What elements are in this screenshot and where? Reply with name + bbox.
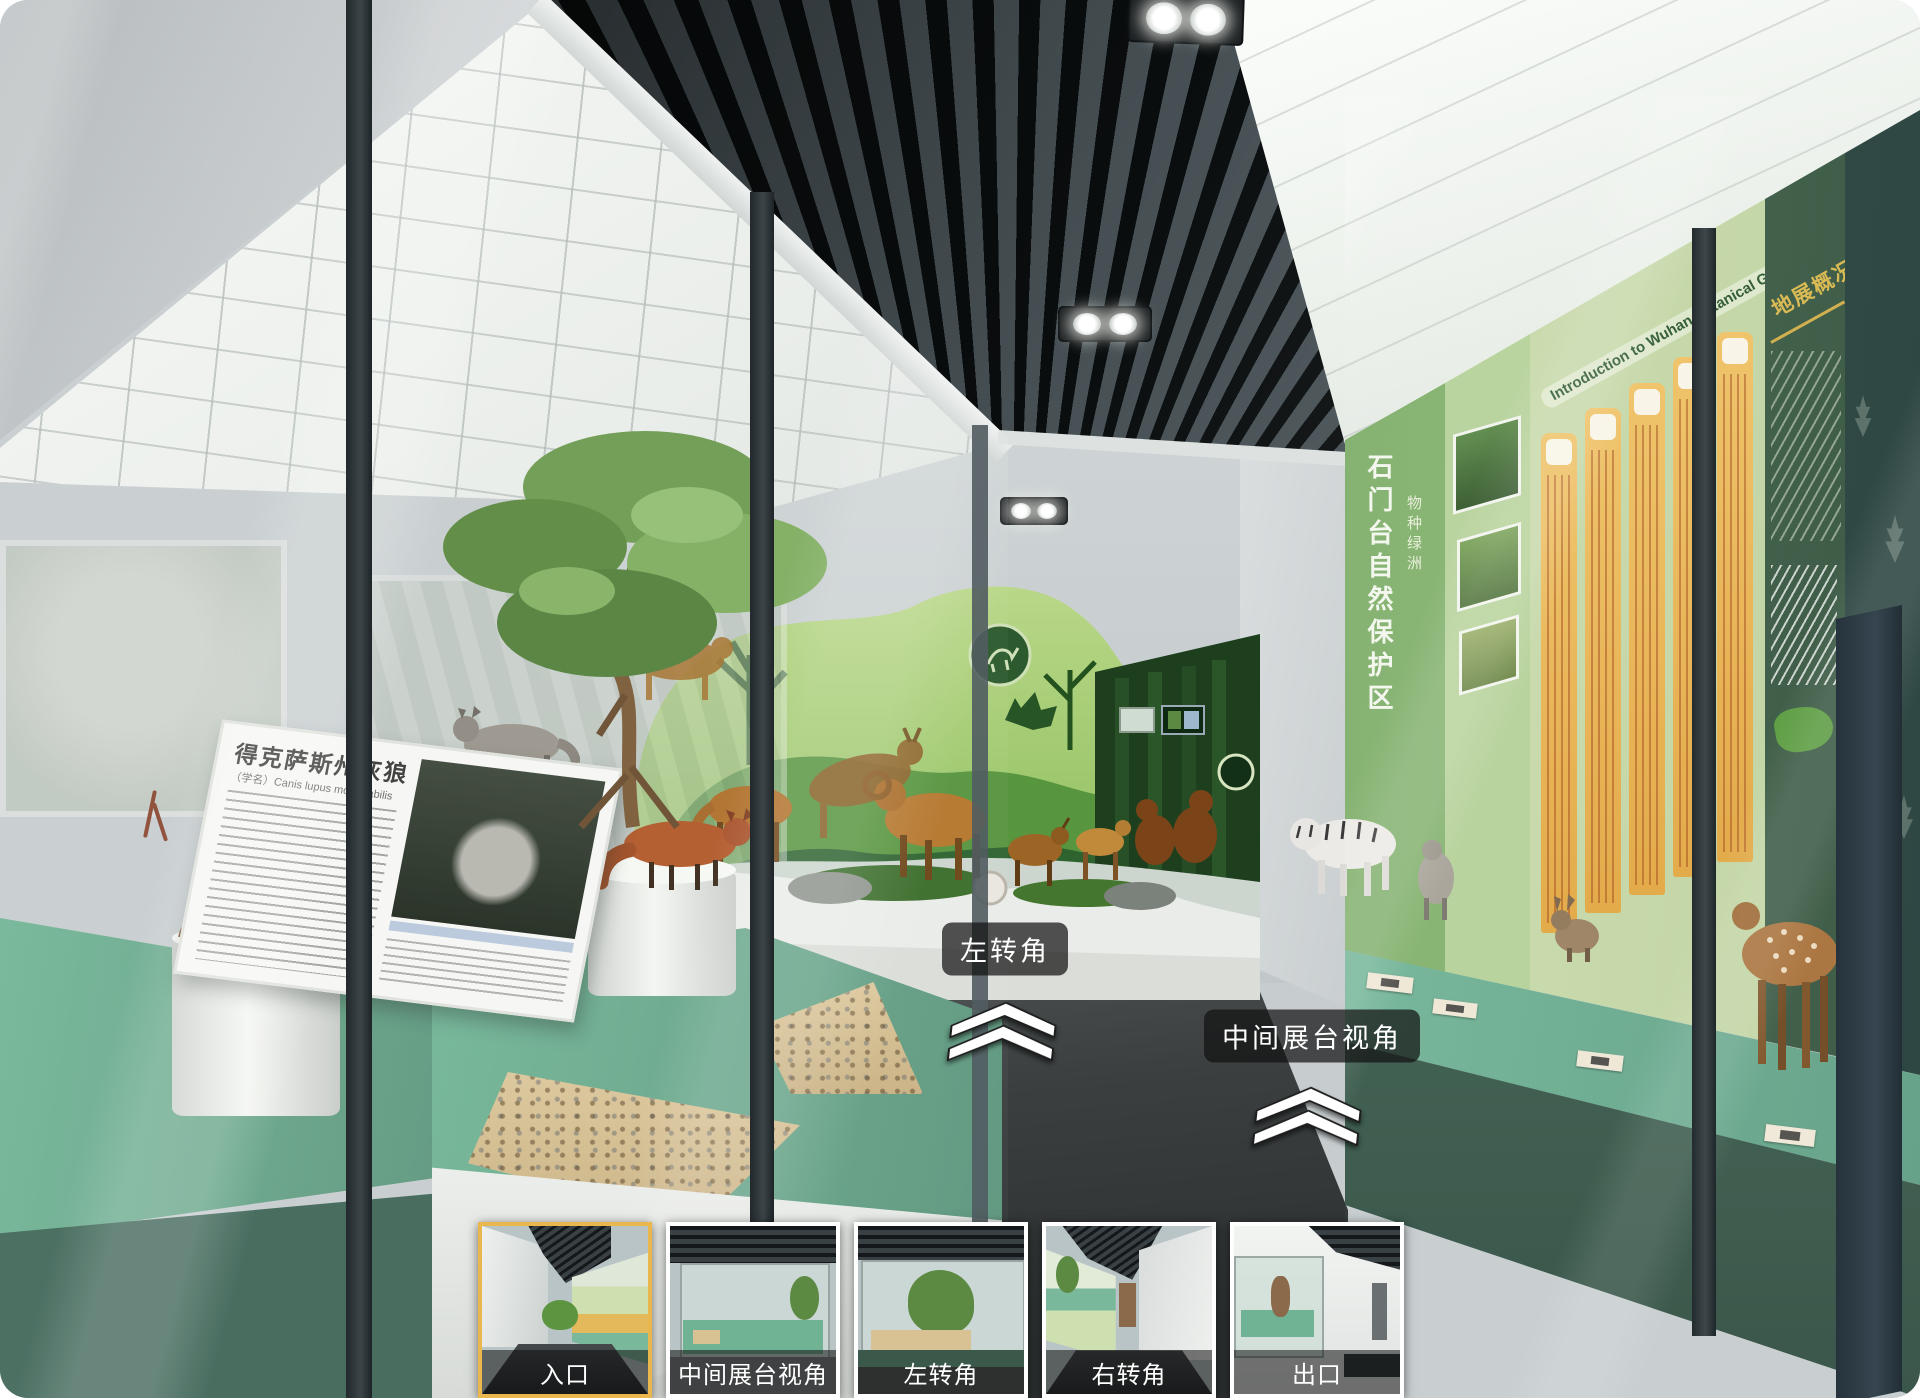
white-tiger-specimen — [1288, 792, 1406, 897]
region-map-silhouette — [1772, 702, 1837, 755]
habitat-photo — [1457, 522, 1521, 612]
reserve-subtitle-vertical: 物种绿洲 — [1403, 495, 1424, 575]
thumbnail-center-stage-view[interactable]: 中间展台视角 — [666, 1222, 840, 1398]
case-end-partition — [1836, 605, 1902, 1398]
thumbnail-right-corner[interactable]: 右转角 — [1042, 1222, 1216, 1398]
sika-deer-specimen — [1722, 882, 1852, 1082]
ficus-tree — [395, 395, 865, 835]
spotlight-fixture — [1127, 0, 1245, 46]
reserve-title-vertical: 石门台自然保护区 — [1361, 453, 1398, 717]
spotlight-fixture — [1058, 306, 1152, 342]
double-chevron-up-icon — [1239, 1081, 1378, 1147]
wolf-cub-specimen — [1408, 836, 1463, 921]
glass-mullion — [750, 192, 774, 1398]
rock — [1104, 882, 1176, 910]
hotspot-label-left-corner[interactable]: 左转角 — [942, 923, 1068, 976]
thumbnail-label: 左转角 — [858, 1350, 1024, 1394]
info-card — [1541, 433, 1577, 933]
habitat-photo — [1453, 415, 1521, 514]
thumbnail-entrance[interactable]: 入口 — [478, 1222, 652, 1398]
thumbnail-label: 右转角 — [1046, 1350, 1212, 1394]
overview-chinese-text — [1771, 351, 1841, 541]
overview-english-text — [1771, 565, 1837, 685]
hotspot-arrow-center-stage[interactable] — [1238, 1081, 1377, 1151]
thumbnail-left-corner[interactable]: 左转角 — [854, 1222, 1028, 1398]
thumbnail-label: 中间展台视角 — [670, 1350, 836, 1394]
thumbnail-label: 入口 — [482, 1350, 648, 1394]
thumbnail-exit[interactable]: 出口 — [1230, 1222, 1404, 1398]
info-card — [1585, 408, 1621, 913]
hotspot-label-center-stage[interactable]: 中间展台视角 — [1204, 1010, 1420, 1063]
glass-mullion — [1692, 228, 1716, 1336]
spotlight-fixture — [1000, 497, 1068, 525]
right-display-case: 石门台自然保护区 物种绿洲 Introduction to Wuhan Bota… — [1345, 95, 1920, 1398]
rock — [788, 872, 872, 904]
glass-mullion — [346, 0, 372, 1398]
pine-silhouette — [1880, 515, 1910, 563]
scene-thumbnail-bar: 入口 中间展台视角 左转角 右转角 — [478, 1222, 1404, 1398]
monkey-specimens — [1135, 790, 1217, 865]
hotspot-arrow-left-corner[interactable] — [933, 996, 1072, 1066]
info-card — [1717, 332, 1753, 862]
double-chevron-up-icon — [934, 996, 1073, 1062]
info-card — [1629, 383, 1665, 895]
panorama-viewport[interactable]: 得克萨斯州灰狼 （学名）Canis lupus monstrabilis 石门台… — [0, 0, 1920, 1398]
rabbit-specimen — [1545, 888, 1607, 963]
glass-corner-edge — [972, 425, 988, 1235]
habitat-photo — [1459, 614, 1519, 695]
thumbnail-label: 出口 — [1234, 1350, 1400, 1394]
pine-silhouette — [1850, 395, 1876, 437]
